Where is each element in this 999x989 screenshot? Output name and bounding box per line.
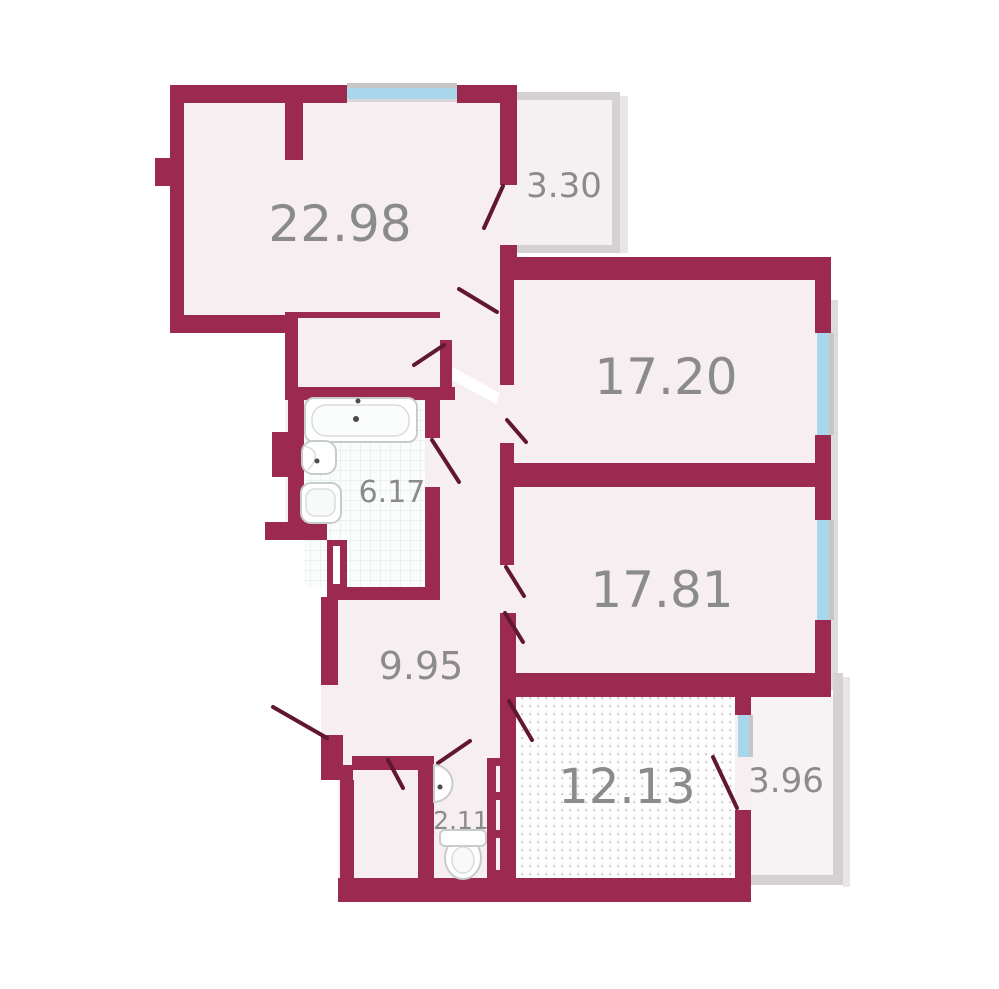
- window-bedroom-1: [817, 333, 834, 435]
- wall: [815, 435, 831, 520]
- wall: [500, 257, 831, 280]
- plumbing-shaft: [487, 792, 500, 800]
- wall: [265, 522, 327, 540]
- wall: [338, 878, 751, 902]
- balcony-wall: [612, 92, 620, 253]
- wall: [321, 597, 338, 685]
- wall: [327, 587, 440, 600]
- balcony-wall: [517, 92, 620, 100]
- room-label-balcony-top: 3.30: [526, 166, 602, 206]
- wall: [418, 756, 434, 880]
- wall: [170, 315, 293, 333]
- floor-plan-canvas: 22.98 3.30 17.20 17.81 6.17 9.95 2.11 12…: [0, 0, 999, 989]
- plumbing-shaft: [487, 758, 500, 766]
- room-label-hallway: 9.95: [379, 644, 464, 688]
- wall: [170, 85, 184, 333]
- window-frame: [347, 99, 457, 102]
- wall: [500, 463, 831, 487]
- plumbing-shaft: [487, 830, 500, 838]
- room-label-kitchen: 12.13: [558, 759, 695, 815]
- wall: [321, 765, 353, 780]
- wall: [272, 432, 288, 477]
- window-glass: [738, 715, 749, 757]
- wall: [815, 257, 831, 333]
- balcony-bottom-shadow: [843, 677, 850, 887]
- balcony-wall: [833, 673, 843, 885]
- window-frame: [347, 83, 457, 88]
- wall: [500, 85, 517, 185]
- wall: [500, 443, 514, 565]
- wall: [155, 158, 170, 186]
- room-label-bathroom: 6.17: [359, 475, 426, 510]
- balcony-wall: [748, 875, 843, 885]
- duct-shaft-hole: [333, 546, 340, 584]
- window-frame: [829, 520, 834, 620]
- wall: [500, 690, 516, 880]
- wall: [500, 673, 831, 697]
- window-frame: [749, 715, 753, 757]
- wall: [340, 780, 354, 880]
- floor-plan-page: 22.98 3.30 17.20 17.81 6.17 9.95 2.11 12…: [0, 0, 999, 989]
- window-living-room: [347, 83, 457, 102]
- wall: [425, 487, 440, 587]
- balcony-wall: [517, 245, 620, 253]
- wall: [285, 103, 303, 160]
- room-label-wc: 2.11: [433, 806, 489, 835]
- room-label-bedroom-1: 17.20: [594, 348, 737, 406]
- wall: [735, 810, 751, 880]
- plumbing-shaft: [487, 870, 500, 880]
- balcony-top-shadow: [620, 96, 628, 253]
- wall: [321, 735, 343, 765]
- room-label-living: 22.98: [268, 195, 411, 253]
- window-glass: [817, 333, 829, 435]
- wall: [285, 312, 298, 400]
- wall: [170, 85, 347, 103]
- toilet-icon: [301, 483, 341, 523]
- sink-icon: [302, 441, 336, 474]
- window-frame: [829, 333, 834, 435]
- bathtub-icon: [305, 398, 417, 442]
- window-kitchen: [738, 715, 753, 757]
- room-label-balcony-bottom: 3.96: [748, 761, 824, 801]
- window-bedroom-2: [817, 520, 834, 620]
- window-glass: [817, 520, 829, 620]
- wall: [293, 312, 440, 318]
- wall: [425, 390, 440, 438]
- room-label-bedroom-2: 17.81: [590, 561, 733, 619]
- wall: [500, 280, 514, 385]
- wall: [735, 697, 751, 715]
- window-glass: [347, 88, 457, 99]
- wall: [500, 245, 517, 259]
